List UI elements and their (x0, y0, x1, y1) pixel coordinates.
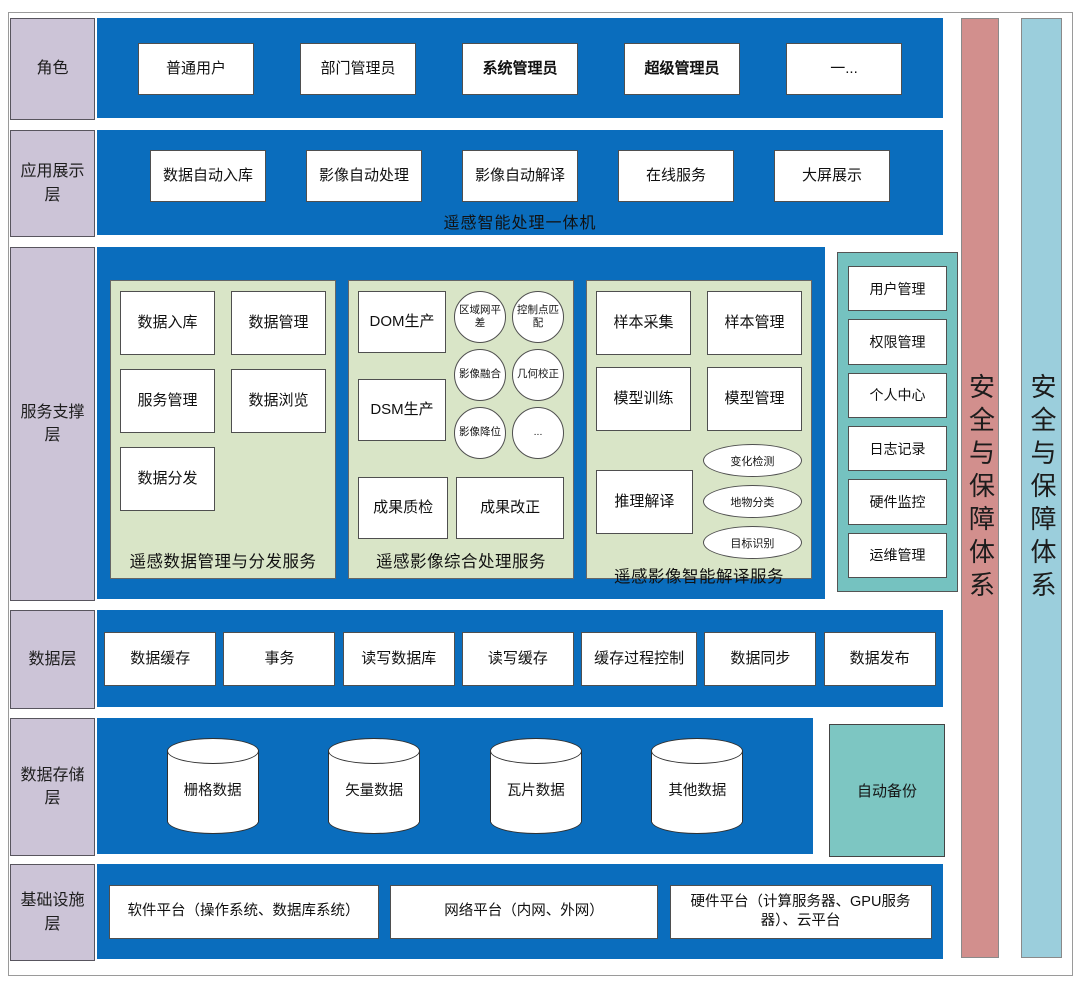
box-cache-process-control: 缓存过程控制 (581, 632, 697, 686)
circle-control-point-match: 控制点匹配 (512, 291, 564, 343)
cylinder-label: 瓦片数据 (490, 738, 582, 834)
layer-label-infra: 基础设施 层 (10, 864, 95, 961)
layer-label-service: 服务支撑 层 (10, 247, 95, 601)
cylinder-other-data: 其他数据 (651, 738, 743, 834)
circle-geometric-correction: 几何校正 (512, 349, 564, 401)
box-model-manage: 模型管理 (707, 367, 802, 431)
box-ops-manage: 运维管理 (848, 533, 947, 578)
infra-band: 软件平台（操作系统、数据库系统） 网络平台（内网、外网） 硬件平台（计算服务器、… (97, 864, 943, 959)
box-model-train: 模型训练 (596, 367, 691, 431)
ellipse-target-recognition: 目标识别 (703, 526, 802, 559)
layer-label-data-text: 数据层 (28, 648, 76, 671)
panel1-boxes: 数据入库 数据管理 服务管理 数据浏览 数据分发 (120, 291, 326, 511)
panel-intelligent-interpretation: 样本采集 样本管理 模型训练 模型管理 推理解译 变化检测 地物分类 目标识别 … (586, 280, 812, 579)
architecture-diagram: 角色 应用展示 层 服务支撑 层 数据层 数据存储 层 基础设施 层 普通用户 … (0, 0, 1080, 983)
box-sample-collect: 样本采集 (596, 291, 691, 355)
box-data-distribute: 数据分发 (120, 447, 215, 511)
box-rw-database: 读写数据库 (343, 632, 455, 686)
box-data-cache: 数据缓存 (104, 632, 216, 686)
circle-image-fusion: 影像融合 (454, 349, 506, 401)
box-result-qc: 成果质检 (358, 477, 448, 539)
box-personal-center: 个人中心 (848, 373, 947, 418)
security-bar-pink: 安全与保障体系 (961, 18, 999, 958)
panel3-title: 遥感影像智能解译服务 (596, 559, 802, 589)
panel3-ellipses: 变化检测 地物分类 目标识别 (703, 444, 802, 559)
cylinder-vector-data: 矢量数据 (328, 738, 420, 834)
cylinder-raster-data: 栅格数据 (167, 738, 259, 834)
app-box-bigscreen: 大屏展示 (774, 150, 890, 202)
box-rw-cache: 读写缓存 (462, 632, 574, 686)
role-box-normal-user: 普通用户 (138, 43, 254, 95)
box-software-platform: 软件平台（操作系统、数据库系统） (109, 885, 379, 939)
box-data-publish: 数据发布 (824, 632, 936, 686)
ellipse-landcover-classify: 地物分类 (703, 485, 802, 518)
layer-label-roles: 角色 (10, 18, 95, 120)
role-box-super-admin: 超级管理员 (624, 43, 740, 95)
layer-label-roles-text: 角色 (36, 57, 68, 80)
cylinder-tile-data: 瓦片数据 (490, 738, 582, 834)
panel-data-management: 数据入库 数据管理 服务管理 数据浏览 数据分发 遥感数据管理与分发服务 (110, 280, 336, 579)
panel2-title: 遥感影像综合处理服务 (358, 544, 564, 574)
security-bar-pink-text: 安全与保障体系 (962, 373, 999, 604)
role-box-sys-admin: 系统管理员 (462, 43, 578, 95)
panel2-bottom-boxes: 成果质检 成果改正 (358, 477, 564, 539)
box-transaction: 事务 (223, 632, 335, 686)
utility-column: 用户管理 权限管理 个人中心 日志记录 硬件监控 运维管理 (837, 252, 958, 592)
panel2-circles: 区域网平差 控制点匹配 影像融合 几何校正 影像降位 ... (454, 291, 564, 459)
data-band: 数据缓存 事务 读写数据库 读写缓存 缓存过程控制 数据同步 数据发布 (97, 610, 943, 707)
box-data-sync: 数据同步 (704, 632, 816, 686)
cylinder-label: 其他数据 (651, 738, 743, 834)
layer-label-app-text: 应用展示 层 (20, 160, 84, 206)
ellipse-change-detection: 变化检测 (703, 444, 802, 477)
layer-label-app: 应用展示 层 (10, 130, 95, 237)
box-hardware-monitor: 硬件监控 (848, 479, 947, 524)
storage-band: 栅格数据 矢量数据 瓦片数据 其他数据 (97, 718, 813, 854)
box-dom-production: DOM生产 (358, 291, 446, 353)
cylinder-label: 栅格数据 (167, 738, 259, 834)
circle-block-adjustment: 区域网平差 (454, 291, 506, 343)
app-box-auto-ingest: 数据自动入库 (150, 150, 266, 202)
app-box-auto-process: 影像自动处理 (306, 150, 422, 202)
box-sample-manage: 样本管理 (707, 291, 802, 355)
app-box-auto-interpret: 影像自动解译 (462, 150, 578, 202)
panel-image-processing: DOM生产 DSM生产 区域网平差 控制点匹配 影像融合 几何校正 影像降位 .… (348, 280, 574, 579)
panel3-row3: 推理解译 变化检测 地物分类 目标识别 (596, 444, 802, 559)
box-permission-manage: 权限管理 (848, 319, 947, 364)
layer-label-storage: 数据存储 层 (10, 718, 95, 856)
role-box-dept-admin: 部门管理员 (300, 43, 416, 95)
app-band-caption: 遥感智能处理一体机 (443, 209, 596, 233)
box-network-platform: 网络平台（内网、外网） (390, 885, 658, 939)
auto-backup-box: 自动备份 (829, 724, 945, 857)
service-band: 数据入库 数据管理 服务管理 数据浏览 数据分发 遥感数据管理与分发服务 DOM… (97, 247, 825, 599)
panel2-left-boxes: DOM生产 DSM生产 (358, 291, 446, 459)
app-box-online-service: 在线服务 (618, 150, 734, 202)
app-boxes: 数据自动入库 影像自动处理 影像自动解译 在线服务 大屏展示 (150, 150, 890, 202)
box-log-record: 日志记录 (848, 426, 947, 471)
box-dsm-production: DSM生产 (358, 379, 446, 441)
layer-label-storage-text: 数据存储 层 (20, 764, 84, 810)
layer-label-service-text: 服务支撑 层 (20, 401, 84, 447)
cylinder-label: 矢量数据 (328, 738, 420, 834)
app-band: 数据自动入库 影像自动处理 影像自动解译 在线服务 大屏展示 遥感智能处理一体机 (97, 130, 943, 235)
box-result-correction: 成果改正 (456, 477, 564, 539)
role-box-ellipsis: 一... (786, 43, 902, 95)
panel3-boxes: 样本采集 样本管理 模型训练 模型管理 (596, 291, 802, 431)
box-inference-interpret: 推理解译 (596, 470, 693, 534)
layer-label-data: 数据层 (10, 610, 95, 709)
box-data-manage: 数据管理 (231, 291, 326, 355)
layer-label-infra-text: 基础设施 层 (20, 889, 84, 935)
security-bar-blue: 安全与保障体系 (1021, 18, 1062, 958)
panel2-top: DOM生产 DSM生产 区域网平差 控制点匹配 影像融合 几何校正 影像降位 .… (358, 291, 564, 459)
box-data-browse: 数据浏览 (231, 369, 326, 433)
box-service-manage: 服务管理 (120, 369, 215, 433)
box-hardware-platform: 硬件平台（计算服务器、GPU服务器）、云平台 (670, 885, 932, 939)
box-data-ingest: 数据入库 (120, 291, 215, 355)
box-user-manage: 用户管理 (848, 266, 947, 311)
circle-bit-reduction: 影像降位 (454, 407, 506, 459)
security-bar-blue-text: 安全与保障体系 (1023, 373, 1060, 604)
roles-band: 普通用户 部门管理员 系统管理员 超级管理员 一... (97, 18, 943, 118)
panel1-title: 遥感数据管理与分发服务 (120, 544, 326, 574)
circle-ellipsis: ... (512, 407, 564, 459)
